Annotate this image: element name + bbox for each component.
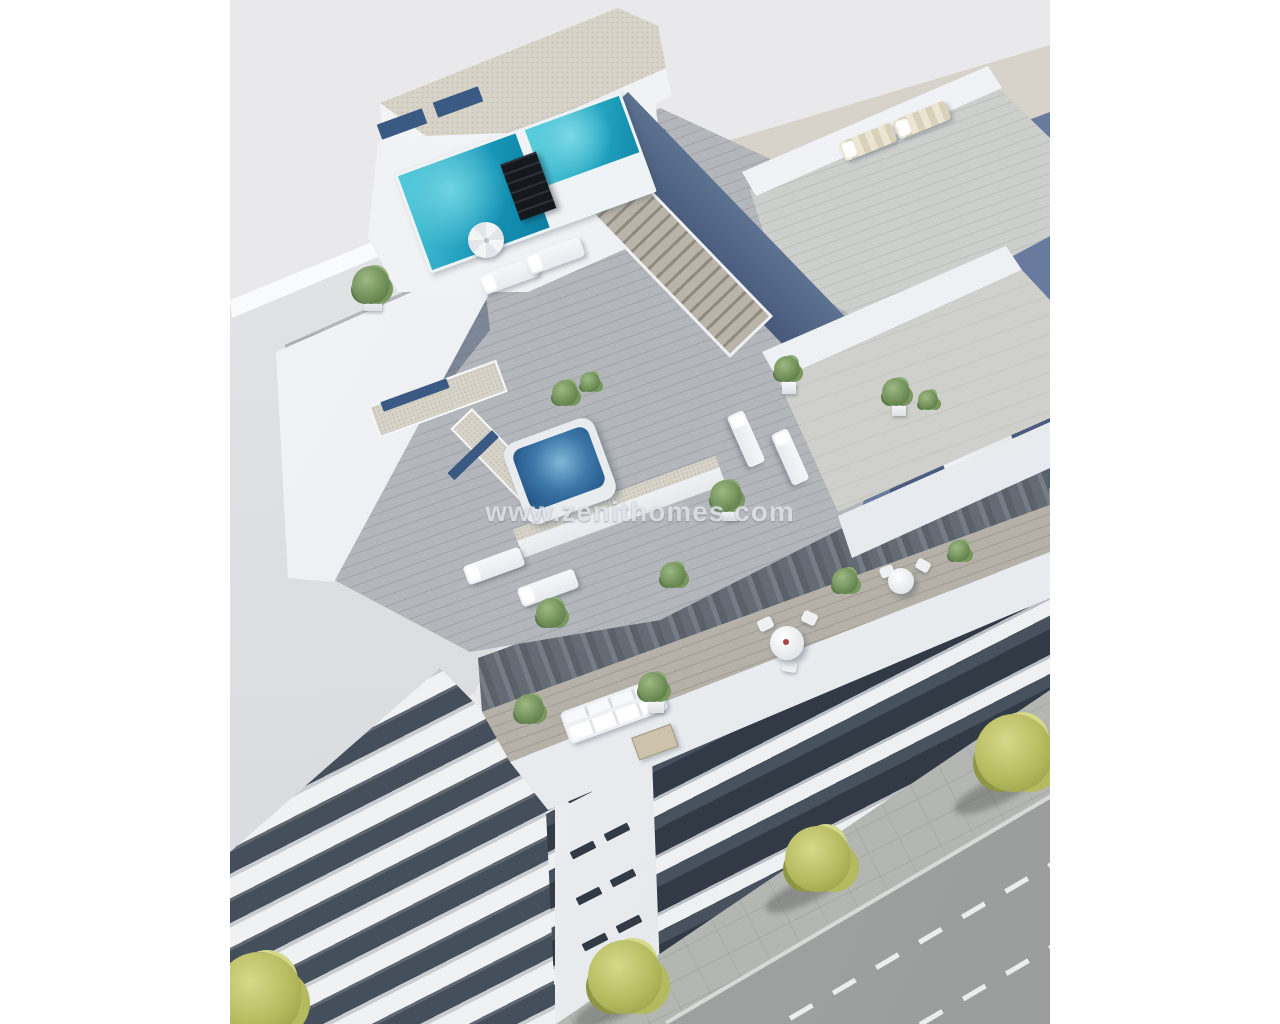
potted-plant [948, 540, 970, 562]
potted-plant [660, 562, 686, 588]
potted-plant [882, 378, 910, 406]
round-dining-table [770, 626, 804, 660]
potted-plant [638, 672, 668, 702]
street-tree [975, 714, 1050, 792]
potted-plant [536, 598, 566, 628]
planter-pot [782, 382, 796, 394]
potted-plant [552, 380, 578, 406]
potted-plant [774, 356, 800, 382]
street-tree [785, 826, 851, 892]
round-side-table [888, 568, 914, 594]
screenshot-canvas: www.zenithomes.com [0, 0, 1280, 1024]
street-tree [588, 940, 662, 1014]
chair [781, 659, 798, 673]
potted-plant [580, 372, 600, 392]
potted-plant [514, 694, 544, 724]
property-render-image: www.zenithomes.com [230, 0, 1050, 1024]
potted-plant [352, 266, 390, 304]
parasol [468, 222, 504, 258]
potted-plant [832, 568, 858, 594]
planter-pot [648, 700, 664, 713]
table-decor [783, 639, 789, 645]
potted-plant [918, 390, 938, 410]
watermark: www.zenithomes.com [485, 496, 794, 528]
